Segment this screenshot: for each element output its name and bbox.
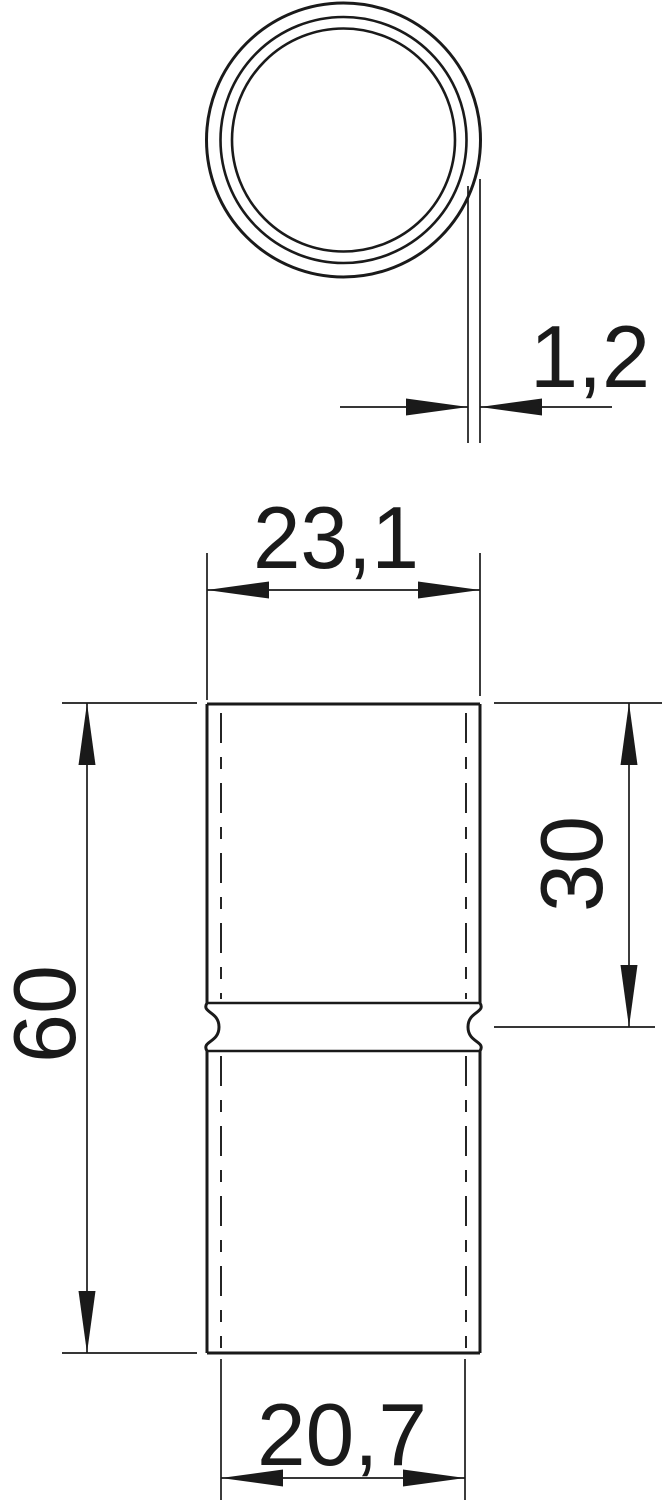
inner-circle: [232, 29, 455, 252]
technical-drawing: 1,2: [0, 0, 662, 1500]
dimension-inner-diameter: 20,7: [221, 1359, 465, 1500]
arrowhead-up: [79, 703, 96, 765]
drawing-canvas: 1,2: [0, 0, 662, 1500]
middle-circle: [221, 17, 467, 263]
dim-outer-diameter-label: 23,1: [253, 488, 419, 587]
dimension-outer-diameter: 23,1: [207, 488, 480, 700]
waist-curve-left: [206, 1003, 219, 1051]
waist-curve-right: [468, 1003, 481, 1051]
dimension-insert-depth: 30: [494, 703, 662, 1027]
dim-insert-depth-label: 30: [522, 816, 621, 912]
dim-total-length-label: 60: [0, 965, 94, 1063]
front-view-sleeve: [206, 704, 481, 1353]
outer-circle: [207, 3, 481, 277]
dimension-wall-thickness: 1,2: [340, 307, 650, 416]
dimension-total-length: 60: [0, 703, 197, 1353]
dim-inner-diameter-label: 20,7: [257, 1385, 427, 1484]
arrowhead-right: [418, 582, 480, 599]
arrowhead-right-pointing: [406, 399, 468, 416]
arrowhead-down: [621, 965, 638, 1027]
arrowhead-up: [621, 703, 638, 765]
arrowhead-down: [79, 1291, 96, 1353]
dim-wall-thickness-label: 1,2: [530, 307, 650, 406]
top-view-cross-section: 1,2: [207, 3, 651, 443]
